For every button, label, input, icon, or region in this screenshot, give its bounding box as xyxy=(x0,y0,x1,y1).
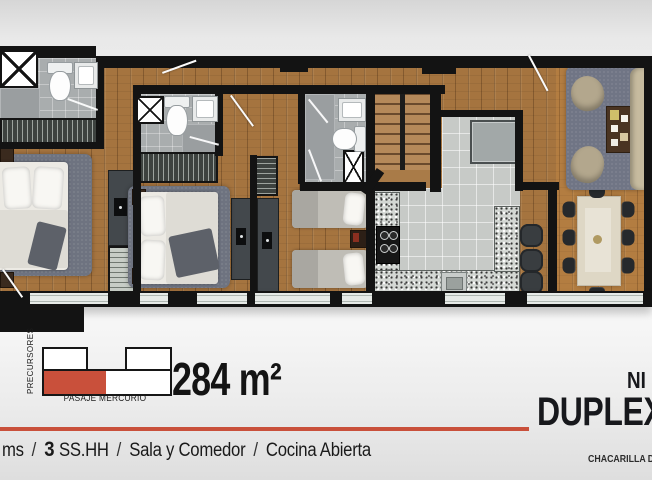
toilet xyxy=(166,105,188,136)
wall xyxy=(366,188,375,292)
floorplan-sheet: PRECURSORES PASAJE MERCURIO 284 m² NI DU… xyxy=(0,0,652,480)
window xyxy=(197,293,247,304)
toilet xyxy=(332,128,357,150)
bar-stool xyxy=(520,224,543,247)
unit-area-label: 284 m² xyxy=(172,356,281,402)
dining-chair xyxy=(563,258,576,274)
pillow-twin-b xyxy=(342,252,365,286)
stove-burner xyxy=(389,244,398,253)
staircase-flight-left xyxy=(374,93,400,173)
bed-twin-b-fold xyxy=(292,250,318,288)
pillow-bedroom2-b xyxy=(139,239,166,280)
pillow-master-a xyxy=(2,166,33,210)
pillow-master-b xyxy=(32,166,65,210)
refrigerator xyxy=(470,120,520,164)
toilet xyxy=(49,71,71,101)
bathroom-sink xyxy=(192,96,218,122)
nightstand-bedroom3-decor xyxy=(353,233,359,242)
wall xyxy=(548,188,557,292)
bar-stool xyxy=(520,249,543,272)
wall xyxy=(250,155,257,292)
wall xyxy=(0,302,84,332)
floor-plan xyxy=(0,0,652,340)
address-label: CHACARILLA DEL xyxy=(588,455,652,465)
dining-centerpiece xyxy=(593,235,602,244)
feature-separator: / xyxy=(117,440,122,462)
throw-bedroom2 xyxy=(168,228,220,278)
wall xyxy=(133,85,445,94)
feature-living-label: Sala y Comedor xyxy=(129,440,245,462)
accent-divider-line xyxy=(0,427,529,431)
level-label: NI xyxy=(627,369,646,392)
window xyxy=(255,293,330,304)
shower3 xyxy=(305,94,335,180)
window xyxy=(140,293,168,304)
duct-shaft xyxy=(343,150,364,184)
coffee-table-item xyxy=(611,125,618,132)
duct-shaft xyxy=(0,50,38,88)
window xyxy=(342,293,372,304)
wall xyxy=(644,56,652,307)
features-bar: ms / 3 SS.HH / Sala y Comedor / Cocina A… xyxy=(2,438,371,462)
wall xyxy=(430,85,441,192)
dining-chair xyxy=(563,202,576,218)
bathroom-sink xyxy=(338,98,366,122)
coffee-table-item xyxy=(620,133,628,141)
dining-chair xyxy=(622,258,635,274)
kitchen-counter-bar xyxy=(494,206,520,272)
window xyxy=(445,293,505,304)
locator-side-street-label: PRECURSORES xyxy=(26,346,35,394)
stove xyxy=(376,226,400,264)
duct-shaft xyxy=(136,96,164,124)
stove-burner xyxy=(380,244,389,253)
feature-dorms-fragment: ms xyxy=(2,440,24,462)
feature-separator: / xyxy=(253,440,258,462)
pillow-twin-a xyxy=(342,192,365,226)
wall xyxy=(441,110,517,117)
kitchen-sink-basin xyxy=(446,277,463,290)
feature-bath-label: SS.HH xyxy=(59,440,109,462)
bed-twin-a-fold xyxy=(292,190,318,228)
staircase-flight-right xyxy=(405,93,430,173)
coffee-table-item xyxy=(621,115,628,122)
stove-burner xyxy=(380,231,389,240)
wall xyxy=(0,142,104,149)
dining-chair xyxy=(622,202,635,218)
tv-console-bedroom2 xyxy=(236,228,246,245)
pillow-bedroom2-a xyxy=(139,195,166,236)
wall xyxy=(298,92,305,184)
window xyxy=(527,293,643,304)
locator-block-bottom xyxy=(42,369,172,396)
wall xyxy=(515,110,523,191)
bathroom-sink xyxy=(74,62,98,89)
stove-burner xyxy=(389,231,398,240)
wardrobe-bedroom2 xyxy=(136,152,218,183)
dining-chair xyxy=(622,230,635,246)
feature-separator: / xyxy=(32,440,37,462)
coffee-table-item xyxy=(610,110,619,120)
dining-chair xyxy=(563,230,576,246)
feature-kitchen-label: Cocina Abierta xyxy=(266,440,371,462)
wall xyxy=(280,56,308,72)
tv-console-bedroom3 xyxy=(262,232,272,249)
unit-name-label: DUPLEX.8 xyxy=(537,392,652,432)
tv-console-master xyxy=(114,198,127,216)
wall xyxy=(422,56,456,74)
coffee-table-item xyxy=(611,139,618,146)
locator-bottom-street-label: PASAJE MERCURIO xyxy=(47,393,163,403)
window xyxy=(30,293,108,304)
feature-bath-count: 3 xyxy=(44,438,54,462)
locator-highlighted-unit xyxy=(44,371,106,394)
